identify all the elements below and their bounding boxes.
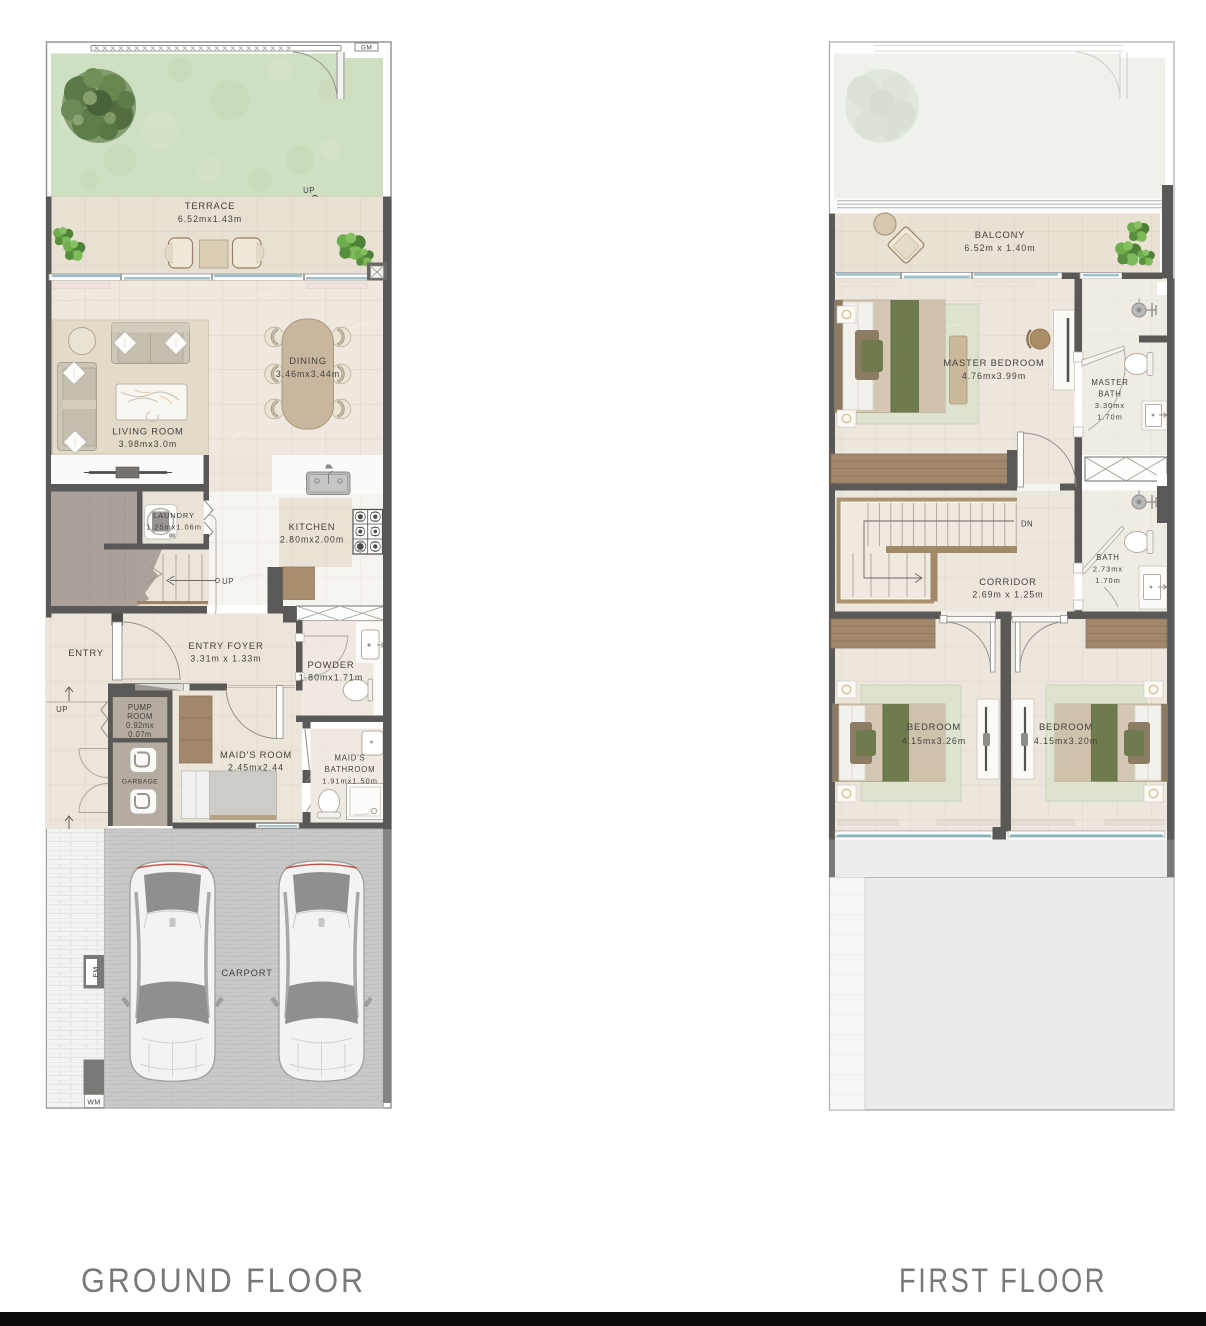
svg-text:LIVING ROOM: LIVING ROOM: [112, 426, 183, 437]
svg-text:WM: WM: [87, 1100, 100, 1107]
svg-text:3.31m x 1.33m: 3.31m x 1.33m: [190, 654, 261, 664]
svg-text:4.15mx3.26m: 4.15mx3.26m: [902, 736, 966, 746]
svg-text:MAID'S ROOM: MAID'S ROOM: [220, 749, 292, 760]
svg-text:4.15mx3.20m: 4.15mx3.20m: [1034, 736, 1098, 746]
svg-text:1.70m: 1.70m: [1097, 413, 1123, 422]
svg-text:UP: UP: [222, 577, 234, 586]
svg-text:1.70m: 1.70m: [1095, 576, 1121, 585]
svg-text:1.80mx1.71m: 1.80mx1.71m: [299, 673, 363, 683]
svg-text:2.69m x 1.25m: 2.69m x 1.25m: [972, 590, 1043, 600]
svg-text:CORRIDOR: CORRIDOR: [979, 576, 1036, 587]
svg-text:TERRACE: TERRACE: [185, 200, 235, 211]
svg-text:ENTRY: ENTRY: [68, 647, 104, 658]
svg-text:BATH: BATH: [1098, 390, 1121, 399]
svg-text:KITCHEN: KITCHEN: [289, 521, 336, 532]
svg-text:MASTER BEDROOM: MASTER BEDROOM: [943, 357, 1044, 368]
svg-text:CARPORT: CARPORT: [221, 967, 272, 978]
svg-text:MAID'S: MAID'S: [335, 754, 366, 763]
svg-text:UP: UP: [303, 186, 315, 195]
svg-text:ENTRY FOYER: ENTRY FOYER: [188, 640, 263, 651]
svg-text:3.46mx3.44m: 3.46mx3.44m: [276, 369, 340, 379]
svg-text:0.07m: 0.07m: [128, 730, 152, 739]
svg-text:2.73mx: 2.73mx: [1093, 565, 1123, 574]
svg-text:GM: GM: [361, 45, 372, 52]
svg-text:2.80mx2.00m: 2.80mx2.00m: [280, 535, 344, 545]
svg-text:3.98mx3.0m: 3.98mx3.0m: [119, 439, 177, 449]
svg-text:3.30mx: 3.30mx: [1095, 401, 1125, 410]
svg-text:6.52m x 1.40m: 6.52m x 1.40m: [964, 243, 1035, 253]
svg-text:POWDER: POWDER: [308, 659, 355, 670]
svg-text:GARBAGE: GARBAGE: [122, 779, 158, 786]
svg-text:0.92mx: 0.92mx: [126, 721, 154, 730]
svg-text:6.52mx1.43m: 6.52mx1.43m: [178, 214, 242, 224]
svg-text:BEDROOM: BEDROOM: [907, 721, 961, 732]
svg-text:4.76mx3.99m: 4.76mx3.99m: [962, 371, 1026, 381]
svg-text:FIRST FLOOR: FIRST FLOOR: [899, 1262, 1107, 1300]
svg-text:DINING: DINING: [289, 355, 327, 366]
svg-text:BEDROOM: BEDROOM: [1039, 721, 1093, 732]
svg-text:PUMP: PUMP: [128, 703, 152, 712]
svg-text:UP: UP: [56, 705, 68, 714]
svg-text:BATHROOM: BATHROOM: [325, 765, 376, 774]
svg-text:DN: DN: [1021, 520, 1033, 529]
svg-text:LAUNDRY: LAUNDRY: [153, 511, 195, 520]
svg-text:MASTER: MASTER: [1091, 378, 1128, 387]
svg-text:1.91mx1.50m: 1.91mx1.50m: [322, 777, 378, 786]
svg-text:ROOM: ROOM: [127, 712, 153, 721]
svg-text:1.25mx1.06m: 1.25mx1.06m: [146, 523, 202, 532]
svg-text:EM: EM: [93, 966, 100, 977]
svg-text:GROUND FLOOR: GROUND FLOOR: [81, 1262, 366, 1300]
svg-text:BATH: BATH: [1096, 553, 1119, 562]
svg-text:BALCONY: BALCONY: [975, 229, 1025, 240]
